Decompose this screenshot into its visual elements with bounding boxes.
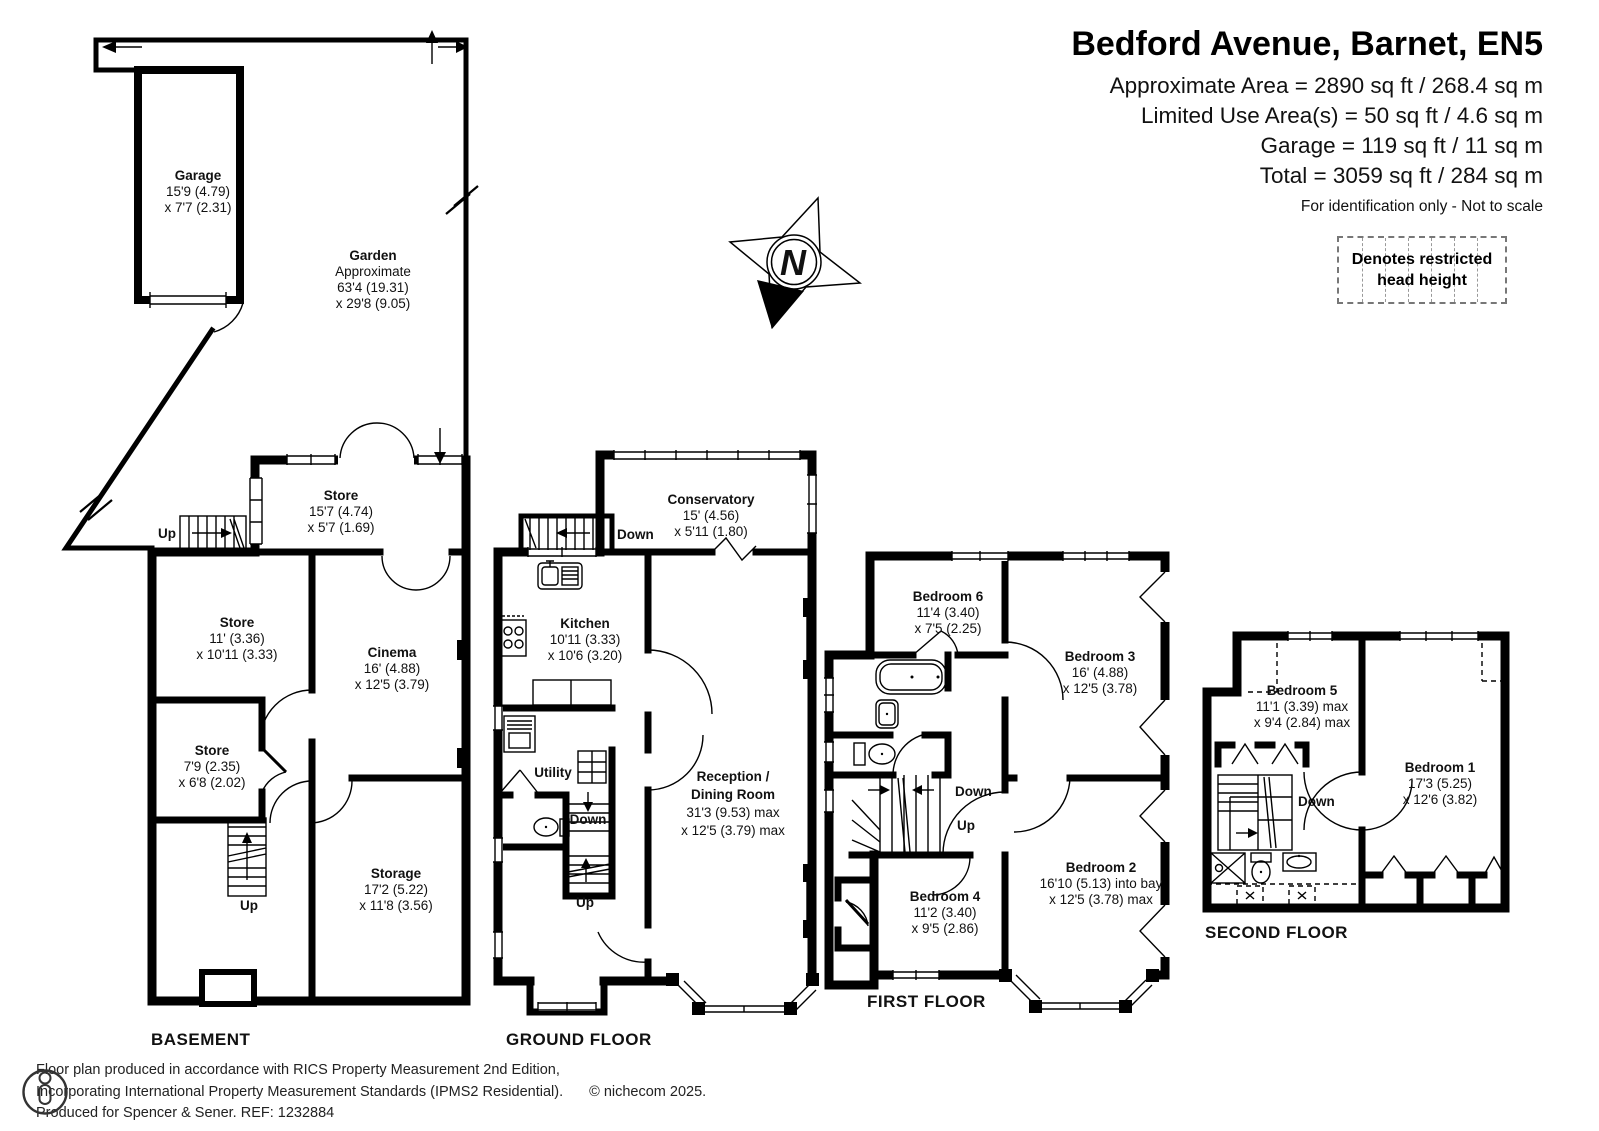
room-name: Bedroom 1 — [1405, 760, 1476, 775]
garden-label: Garden Approximate 63'4 (19.31) x 29'8 (… — [335, 248, 411, 311]
room-name: Bedroom 5 — [1267, 683, 1338, 698]
area-line: Garage = 119 sq ft / 11 sq m — [900, 131, 1543, 161]
first-floor-plan: Down Up Bedroom 6 11'4 (3.40) x 7'5 (2.2… — [824, 551, 1170, 1013]
garden-dim: 63'4 (19.31) — [337, 280, 409, 295]
first-floor-label: FIRST FLOOR — [867, 992, 986, 1011]
bedroom1-label: Bedroom 1 17'3 (5.25) x 12'6 (3.82) — [1403, 760, 1478, 807]
ground-up-mid-label: Up — [576, 895, 594, 910]
room-dim: x 12'5 (3.79) — [355, 677, 430, 692]
page-title: Bedford Avenue, Barnet, EN5 — [900, 24, 1543, 64]
garage-label: Garage 15'9 (4.79) x 7'7 (2.31) — [164, 168, 231, 215]
area-line: Approximate Area = 2890 sq ft / 268.4 sq… — [900, 71, 1543, 101]
store-small-label: Store 7'9 (2.35) x 6'8 (2.02) — [178, 743, 245, 790]
room-name: Store — [324, 488, 359, 503]
bedroom6-label: Bedroom 6 11'4 (3.40) x 7'5 (2.25) — [913, 589, 984, 636]
footer-line2: Incorporating International Property Mea… — [36, 1084, 563, 1100]
room-dim: x 6'8 (2.02) — [178, 775, 245, 790]
ground-floor-plan: Down — [493, 450, 819, 1049]
bedroom3-label: Bedroom 3 16' (4.88) x 12'5 (3.78) — [1063, 649, 1138, 696]
legend-line: Denotes restricted — [1339, 249, 1505, 270]
person-logo-icon — [22, 1060, 70, 1126]
footer-line: Floor plan produced in accordance with R… — [36, 1060, 706, 1082]
room-dim: 11'4 (3.40) — [916, 605, 979, 620]
room-name: Store — [220, 615, 255, 630]
garden-note: Approximate — [335, 264, 411, 279]
kitchen-label: Kitchen 10'11 (3.33) x 10'6 (3.20) — [548, 616, 623, 663]
room-dim: 11'1 (3.39) max — [1256, 699, 1349, 714]
room-name: Store — [195, 743, 230, 758]
kitchen-counter — [533, 680, 611, 705]
room-dim: x 12'5 (3.79) max — [681, 823, 785, 838]
shower-icon — [1211, 853, 1245, 883]
room-name: Cinema — [368, 645, 417, 660]
room-dim: 7'9 (2.35) — [184, 759, 241, 774]
washer-icon — [504, 716, 535, 752]
second-floor-label: SECOND FLOOR — [1205, 923, 1348, 942]
compass-north-label: N — [780, 242, 807, 283]
room-name: Bedroom 3 — [1065, 649, 1136, 664]
room-dim: x 10'11 (3.33) — [196, 647, 277, 662]
garden-dim: x 29'8 (9.05) — [336, 296, 411, 311]
garage-name: Garage — [175, 168, 222, 183]
second-stairs — [1218, 775, 1292, 850]
room-name: Bedroom 4 — [910, 889, 981, 904]
store-top-label: Store 15'7 (4.74) x 5'7 (1.69) — [307, 488, 374, 535]
first-down-label: Down — [955, 784, 992, 799]
basement-up-bottom-label: Up — [240, 898, 258, 913]
room-name: Bedroom 2 — [1066, 860, 1137, 875]
area-line: Total = 3059 sq ft / 284 sq m — [900, 161, 1543, 191]
room-dim: x 12'5 (3.78) — [1063, 681, 1138, 696]
room-dim: x 12'5 (3.78) max — [1049, 892, 1153, 907]
toilet-icon-first — [854, 743, 895, 765]
room-dim: x 5'7 (1.69) — [307, 520, 374, 535]
copyright: © nichecom 2025. — [589, 1084, 706, 1100]
bath-icon — [876, 660, 946, 694]
skylight-icon — [1237, 886, 1263, 905]
room-name: Reception / — [697, 769, 770, 784]
garden-name: Garden — [349, 248, 396, 263]
basement-up-top-label: Up — [158, 526, 176, 541]
room-dim: 16' (4.88) — [364, 661, 421, 676]
second-floor-plan: Down — [1205, 631, 1505, 942]
room-dim: 11'2 (3.40) — [913, 905, 976, 920]
room-dim: x 7'5 (2.25) — [914, 621, 981, 636]
footer: Floor plan produced in accordance with R… — [22, 1060, 706, 1125]
conservatory-label: Conservatory 15' (4.56) x 5'11 (1.80) — [667, 492, 755, 539]
room-dim: x 12'6 (3.82) — [1403, 792, 1478, 807]
room-dim: 15' (4.56) — [683, 508, 740, 523]
basement-plan: Up Up Store 15'7 (4.74) x 5'7 (1.69) Sto… — [151, 423, 468, 1049]
room-dim: 16'10 (5.13) into bay — [1040, 876, 1163, 891]
room-dim: 31'3 (9.53) max — [686, 805, 780, 820]
bedroom4-label: Bedroom 4 11'2 (3.40) x 9'5 (2.86) — [910, 889, 981, 936]
room-dim: x 9'5 (2.86) — [911, 921, 978, 936]
ground-stairs-mid — [568, 792, 610, 883]
first-up-label: Up — [957, 818, 975, 833]
room-dim: x 5'11 (1.80) — [674, 524, 748, 539]
basement-stairs-top — [180, 516, 246, 550]
reception-label: Reception / Dining Room 31'3 (9.53) max … — [681, 769, 785, 838]
garden-outline — [66, 30, 478, 548]
room-dim: x 10'6 (3.20) — [548, 648, 623, 663]
garage-dim: x 7'7 (2.31) — [164, 200, 231, 215]
room-dim: x 9'4 (2.84) max — [1254, 715, 1351, 730]
area-summary: Approximate Area = 2890 sq ft / 268.4 sq… — [900, 71, 1543, 191]
first-stairs — [852, 775, 940, 855]
toilet-icon-second — [1251, 853, 1271, 883]
cinema-label: Cinema 16' (4.88) x 12'5 (3.79) — [355, 645, 430, 692]
room-dim: x 11'8 (3.56) — [359, 898, 433, 913]
utility-label: Utility — [534, 765, 572, 780]
floorplan-page: Garage 15'9 (4.79) x 7'7 (2.31) Garden A… — [0, 0, 1599, 1131]
area-line: Limited Use Area(s) = 50 sq ft / 4.6 sq … — [900, 101, 1543, 131]
footer-line: Incorporating International Property Mea… — [36, 1082, 706, 1104]
room-dim: 10'11 (3.33) — [550, 632, 621, 647]
ground-stairs-top — [525, 516, 602, 550]
wardrobe-row — [1368, 856, 1503, 904]
garage-dim: 15'9 (4.79) — [166, 184, 230, 199]
bedroom2-label: Bedroom 2 16'10 (5.13) into bay x 12'5 (… — [1040, 860, 1163, 907]
skylight-icon — [1289, 886, 1315, 905]
room-dim: 16' (4.88) — [1072, 665, 1129, 680]
sink-icon-first — [876, 700, 898, 728]
hob-icon — [500, 616, 526, 656]
room-dim: 17'2 (5.22) — [364, 882, 428, 897]
restricted-height-legend: Denotes restricted head height — [1337, 236, 1507, 304]
basement-floor-label: BASEMENT — [151, 1030, 251, 1049]
title-block: Bedford Avenue, Barnet, EN5 Approximate … — [900, 24, 1543, 216]
footer-line: Produced for Spencer & Sener. REF: 12328… — [36, 1103, 706, 1125]
ground-floor-label: GROUND FLOOR — [506, 1030, 652, 1049]
footer-text: Floor plan produced in accordance with R… — [36, 1060, 706, 1125]
ground-down-top-label: Down — [617, 527, 654, 542]
bedroom5-label: Bedroom 5 11'1 (3.39) max x 9'4 (2.84) m… — [1254, 683, 1351, 730]
cupboard-grid — [578, 751, 606, 783]
legend-line: head height — [1339, 270, 1505, 291]
second-down-label: Down — [1298, 794, 1335, 809]
room-name: Storage — [371, 866, 422, 881]
basement-stairs-bottom — [228, 818, 266, 896]
room-dim: 11' (3.36) — [209, 631, 265, 646]
ground-down-mid-label: Down — [570, 812, 607, 827]
store-mid-label: Store 11' (3.36) x 10'11 (3.33) — [196, 615, 277, 662]
identification-note: For identification only - Not to scale — [900, 198, 1543, 216]
compass-rose: N — [730, 198, 860, 329]
room-dim: 17'3 (5.25) — [1408, 776, 1472, 791]
sink-icon-second — [1283, 853, 1316, 871]
storage-label: Storage 17'2 (5.22) x 11'8 (3.56) — [359, 866, 433, 913]
room-name: Conservatory — [667, 492, 755, 507]
room-name: Kitchen — [560, 616, 610, 631]
room-name: Dining Room — [691, 787, 775, 802]
room-name: Bedroom 6 — [913, 589, 984, 604]
kitchen-sink-icon — [538, 561, 582, 589]
room-dim: 15'7 (4.74) — [309, 504, 373, 519]
legend-text: Denotes restricted head height — [1339, 238, 1505, 291]
